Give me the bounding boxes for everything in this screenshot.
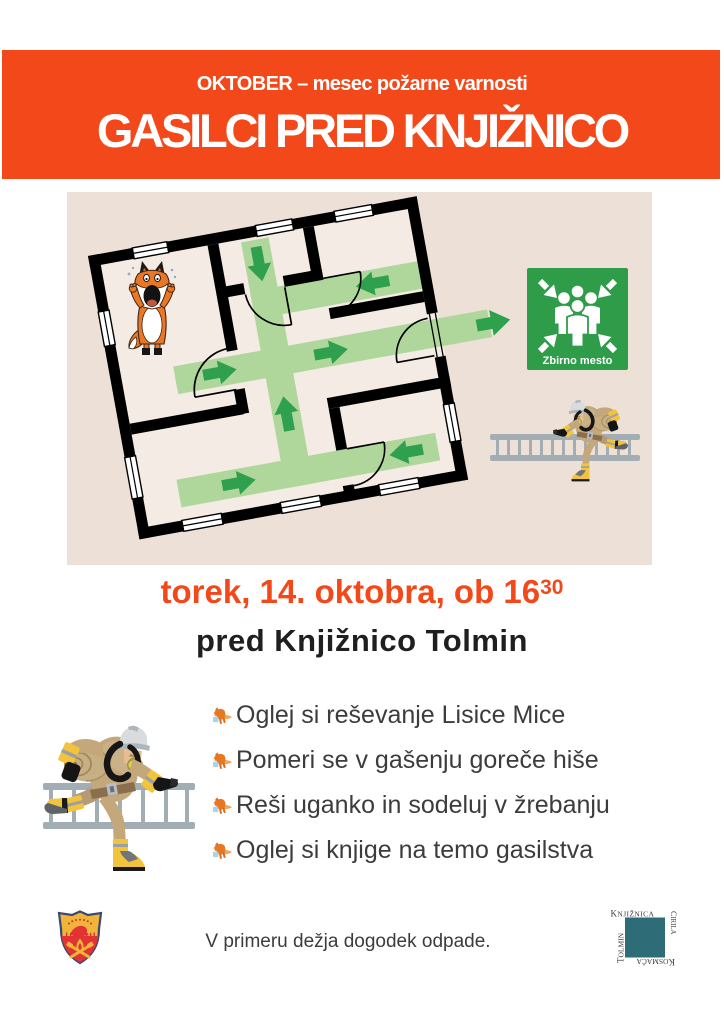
svg-text:TOLMIN: TOLMIN <box>616 932 626 963</box>
svg-text:KNJIŽNICA: KNJIŽNICA <box>611 909 655 919</box>
svg-text:CIRILA: CIRILA <box>669 911 678 935</box>
svg-text:KOSMAČA: KOSMAČA <box>636 957 675 967</box>
svg-text:Zbirno mesto: Zbirno mesto <box>543 355 613 367</box>
